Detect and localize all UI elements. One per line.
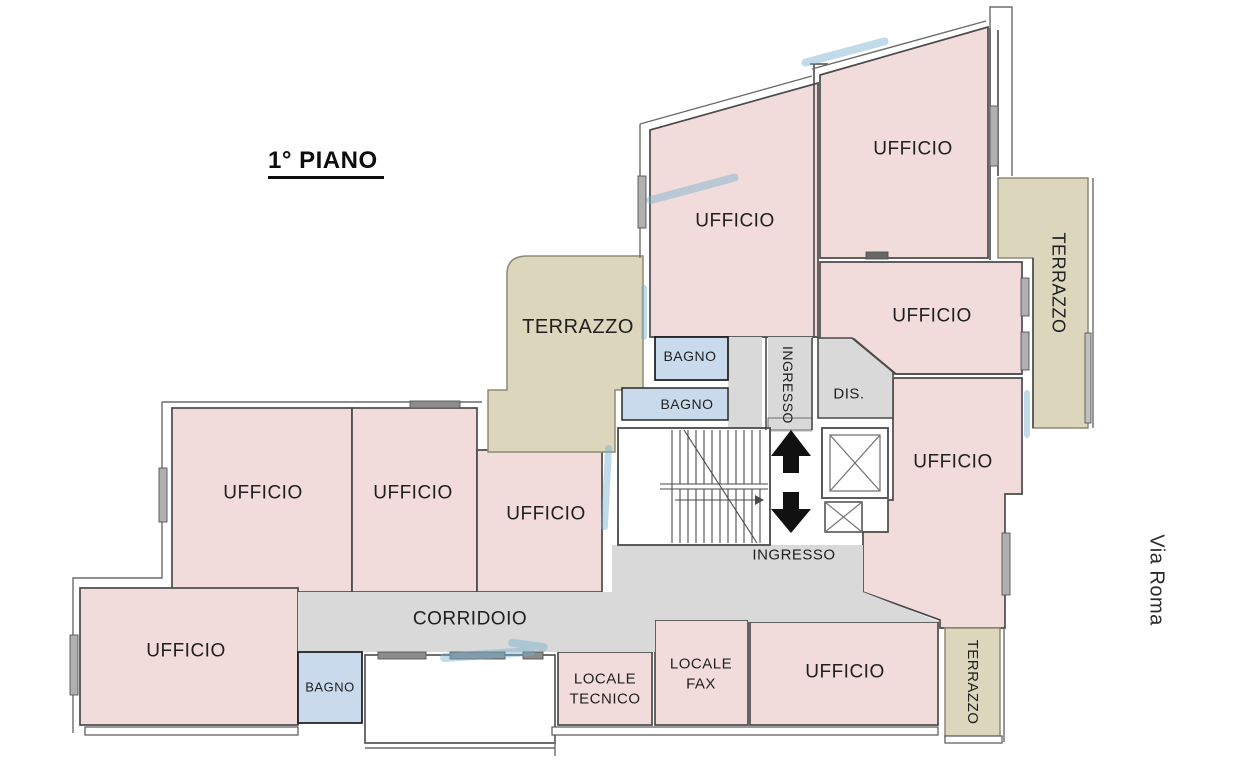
window-right-mid-1 [1021, 278, 1029, 316]
floor-plan: 1° PIANO UFFICIO UFFICIO UFFICIO UFFICIO… [0, 0, 1233, 781]
window-terrace-right [1085, 333, 1091, 423]
label-ufficio-right-large: UFFICIO [913, 451, 993, 476]
door-corridor-1 [378, 652, 426, 659]
label-terrazzo-middle: TERRAZZO [522, 314, 634, 340]
label-corridoio: CORRIDOIO [413, 608, 527, 633]
stairwell [618, 428, 770, 545]
label-terrazzo-right: TERRAZZO [1046, 233, 1069, 334]
terrace-middle [488, 256, 643, 452]
window-bottom-left-room [70, 635, 78, 695]
elevator-shaft [822, 428, 888, 498]
page-title: 1° PIANO [268, 147, 384, 179]
small-shaft [825, 502, 862, 532]
label-ufficio-left-2: UFFICIO [373, 482, 453, 507]
label-dis: DIS. [833, 384, 864, 404]
label-ufficio-left-3: UFFICIO [506, 503, 586, 528]
window-top-left-room [638, 176, 646, 228]
label-ufficio-top-right: UFFICIO [873, 138, 953, 163]
label-bagno-2: BAGNO [660, 395, 713, 413]
label-ufficio-bottom-right: UFFICIO [805, 661, 885, 686]
down-arrow-icon [771, 492, 811, 533]
window-top-right-room [990, 106, 998, 166]
label-locale-fax: LOCALE FAX [670, 655, 732, 694]
label-locale-fax-line1: LOCALE [670, 655, 732, 675]
label-ufficio-bottom-left: UFFICIO [146, 640, 226, 665]
label-bagno-1: BAGNO [663, 347, 716, 365]
label-ufficio-left-1: UFFICIO [223, 482, 303, 507]
door-divider-mark [866, 252, 888, 259]
label-locale-tecnico: LOCALE TECNICO [570, 670, 641, 709]
window-left-block [159, 468, 167, 522]
label-locale-fax-line2: FAX [670, 674, 732, 694]
street-label: Via Roma [1145, 534, 1168, 625]
label-ufficio-right-mid: UFFICIO [892, 305, 972, 330]
label-ingresso-vertical: INGRESSO [779, 346, 797, 424]
window-right-large [1002, 533, 1010, 595]
label-ingresso-horizontal: INGRESSO [752, 545, 835, 565]
up-arrow-icon [771, 430, 811, 473]
label-terrazzo-bottom: TERRAZZO [962, 640, 982, 725]
label-locale-tecnico-line2: TECNICO [570, 689, 641, 709]
label-ufficio-top-left: UFFICIO [695, 210, 775, 235]
door-top-left-block [410, 401, 460, 408]
label-locale-tecnico-line1: LOCALE [570, 670, 641, 690]
window-right-mid-2 [1021, 332, 1029, 370]
label-bagno-bottom: BAGNO [305, 680, 354, 697]
